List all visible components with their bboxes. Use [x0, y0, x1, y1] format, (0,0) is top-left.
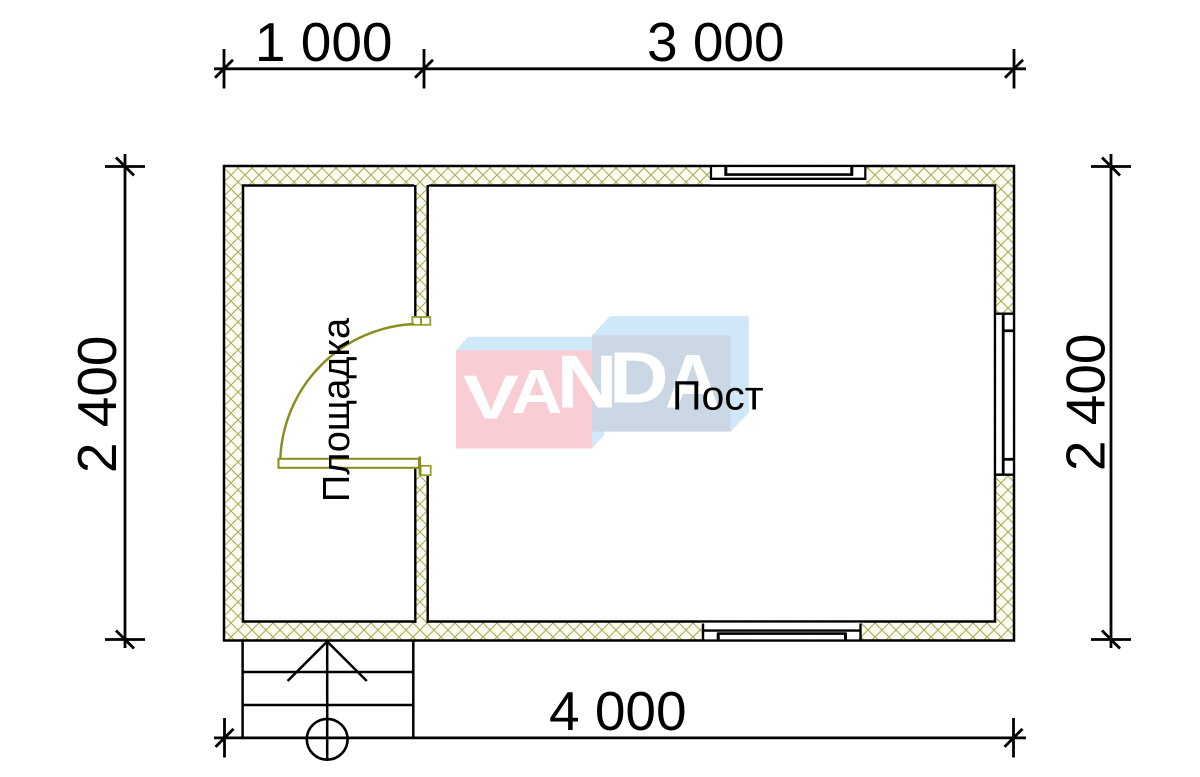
svg-text:2 400: 2 400	[66, 335, 128, 473]
svg-text:D: D	[609, 338, 669, 418]
svg-text:1 000: 1 000	[255, 11, 393, 73]
svg-text:2 400: 2 400	[1055, 333, 1117, 471]
svg-text:A: A	[511, 358, 562, 427]
svg-text:Площадка: Площадка	[316, 317, 358, 502]
svg-text:4 000: 4 000	[549, 680, 687, 742]
svg-text:3 000: 3 000	[647, 11, 785, 73]
svg-text:Пост: Пост	[672, 373, 764, 419]
